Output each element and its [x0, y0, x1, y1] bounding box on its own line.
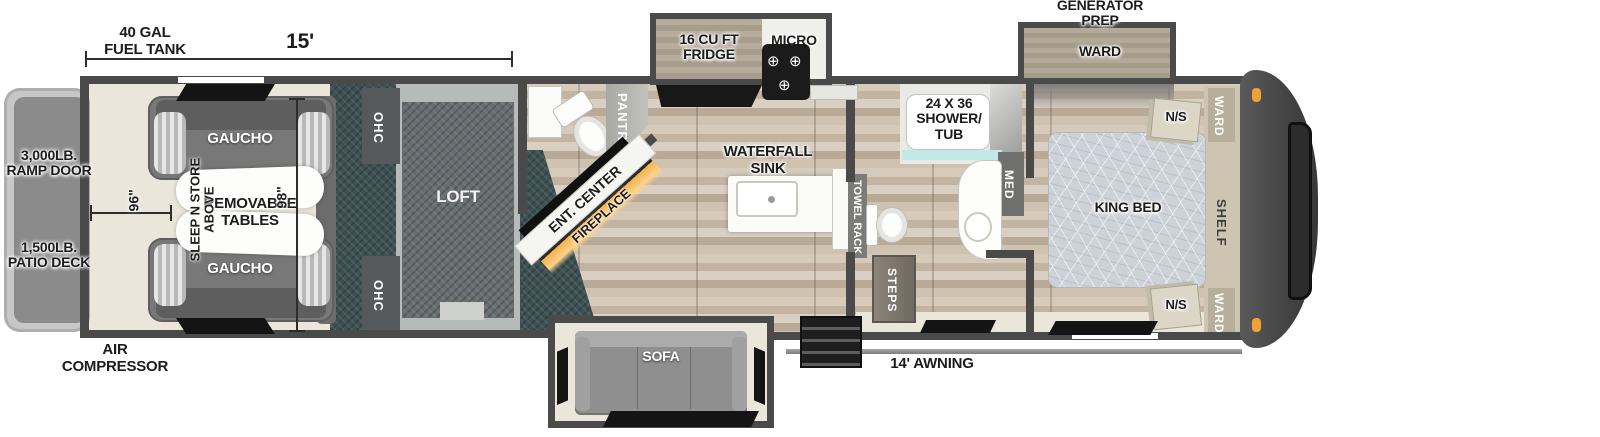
ramp-door-label: 3,000LB. RAMP DOOR	[6, 148, 92, 179]
burner-icon: ⊕	[767, 52, 780, 70]
burner-icon: ⊕	[778, 76, 791, 94]
loft-halfbath-wall	[518, 82, 527, 214]
bath-vanity	[958, 160, 1002, 260]
sleep-n-store-label: SLEEP N STORE ABOVE	[188, 148, 215, 272]
sofa-label: SOFA	[605, 349, 717, 364]
marker-light-bottom	[1252, 318, 1261, 332]
awning-label: 14' AWNING	[866, 356, 998, 373]
fridge-front	[656, 85, 762, 107]
cooktop: ⊕ ⊕ ⊕	[762, 44, 810, 100]
garage-bottom-window	[176, 318, 278, 334]
bath-toilet-bowl	[876, 207, 908, 243]
king-bed-label: KING BED	[1068, 200, 1188, 215]
steps-label: STEPS	[886, 264, 898, 316]
ward-slide-label: WARD	[1060, 44, 1140, 59]
bath-bedroom-wall	[1026, 82, 1034, 178]
bedroom-bottom-window	[1048, 321, 1158, 335]
ohc-bottom-label: OHC	[372, 268, 385, 324]
sofa-back	[575, 331, 747, 347]
garage-length-label: 15'	[268, 30, 332, 53]
sofa-arm-left	[575, 337, 590, 411]
dim-tick-96-left	[90, 205, 92, 221]
ward-bottom-label: WARD	[1213, 290, 1225, 336]
top-wall-bath	[830, 76, 1026, 84]
floorplan-canvas: LOFT OHC OHC GAUCHO GAUCHO REMOVABLE TAB…	[0, 0, 1600, 437]
kitchen-counter	[810, 85, 858, 100]
bottom-wall-garage	[80, 330, 553, 338]
gaucho-top-label: GAUCHO	[175, 131, 305, 148]
shower-water-strip	[902, 150, 1002, 160]
bedroom-entry-wall	[1026, 250, 1034, 338]
dim-line-15ft	[85, 58, 513, 60]
sofa-slide-door-mat	[603, 411, 759, 427]
sofa-slide: SOFA	[548, 316, 774, 428]
fridge-label: 16 CU FT FRIDGE	[658, 32, 760, 63]
dim-tick-98-top	[289, 98, 305, 100]
window-sill-top	[178, 77, 264, 83]
patio-deck	[14, 97, 86, 323]
marker-light-top	[1252, 88, 1261, 102]
bath-bottom-window	[920, 320, 996, 333]
waterfall-sink-label: WATERFALL SINK	[718, 144, 818, 177]
vanity-sink	[964, 212, 992, 242]
dim-tick-15ft-right	[511, 51, 513, 67]
loft-notch	[440, 302, 484, 320]
dim-tick-96-right	[170, 205, 172, 221]
bottom-wall-entry	[770, 332, 802, 340]
island	[728, 176, 840, 232]
shower-label: 24 X 36 SHOWER/ TUB	[906, 96, 992, 142]
burner-icon: ⊕	[789, 52, 802, 70]
front-cap-window	[1288, 122, 1312, 300]
loft-label: LOFT	[408, 188, 508, 207]
dim-96-label: 96"	[127, 180, 142, 220]
fuel-tank-label: 40 GAL FUEL TANK	[85, 25, 205, 58]
rear-wall	[80, 76, 89, 338]
top-wall-garage	[80, 76, 652, 84]
top-wall-bedroom	[1174, 76, 1246, 84]
entry-steps	[800, 316, 862, 368]
ward-top-label: WARD	[1213, 92, 1225, 140]
shelf-label: SHELF	[1215, 182, 1228, 264]
sofa	[575, 331, 747, 415]
patio-deck-label: 1,500LB. PATIO DECK	[6, 240, 92, 271]
ns-bottom-label: N/S	[1156, 298, 1196, 312]
loft-body	[402, 102, 514, 318]
garage-top-window	[176, 84, 278, 101]
dim-line-98	[296, 98, 298, 332]
ohc-top-label: OHC	[372, 100, 385, 156]
towel-rack-label: TOWEL RACK	[851, 177, 862, 257]
dim-tick-98-bottom	[289, 330, 305, 332]
sofa-arm-right	[732, 337, 747, 411]
dim-98-label: 98"	[275, 177, 290, 217]
faucet	[768, 196, 775, 203]
ns-top-label: N/S	[1156, 110, 1196, 124]
air-compressor-label: AIR COMPRESSOR	[55, 342, 175, 375]
med-label: MED	[1003, 160, 1015, 210]
generator-prep-label: GENERATOR PREP	[1048, 0, 1152, 29]
sofa-slide-window-right	[754, 347, 765, 405]
sofa-slide-window-left	[557, 347, 568, 405]
sink-basin	[736, 181, 798, 217]
